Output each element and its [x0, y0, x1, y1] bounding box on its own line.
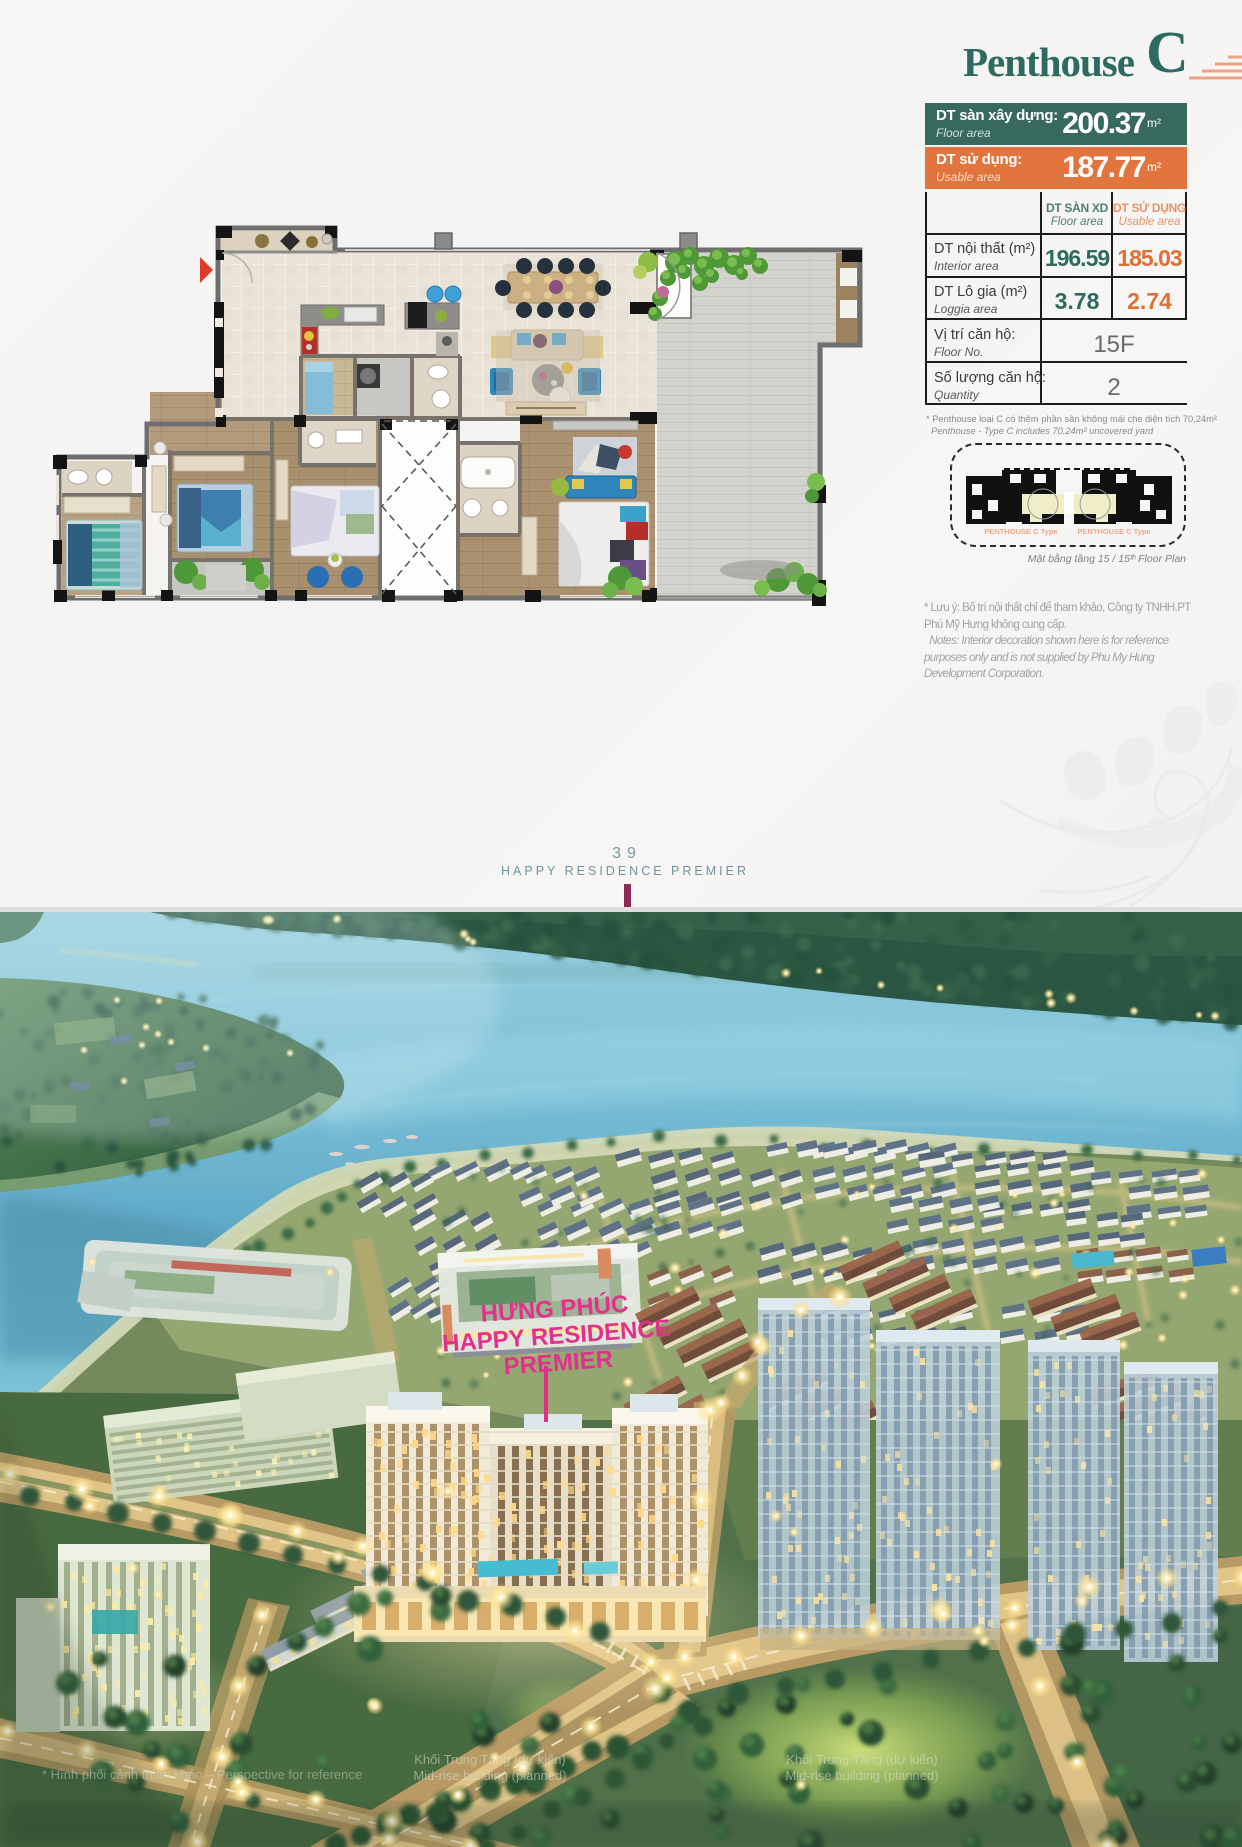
svg-text:Mid-rise building (planned): Mid-rise building (planned) — [413, 1768, 566, 1783]
svg-text:* Hình phối cảnh tham khảo – P: * Hình phối cảnh tham khảo – Perspective… — [42, 1767, 362, 1782]
svg-text:Khối Trung Tầng (dự kiến): Khối Trung Tầng (dự kiến) — [414, 1752, 566, 1767]
svg-text:Khối Trung Tầng (dự kiến): Khối Trung Tầng (dự kiến) — [786, 1752, 938, 1767]
svg-text:Mid-rise building (planned): Mid-rise building (planned) — [785, 1768, 938, 1783]
